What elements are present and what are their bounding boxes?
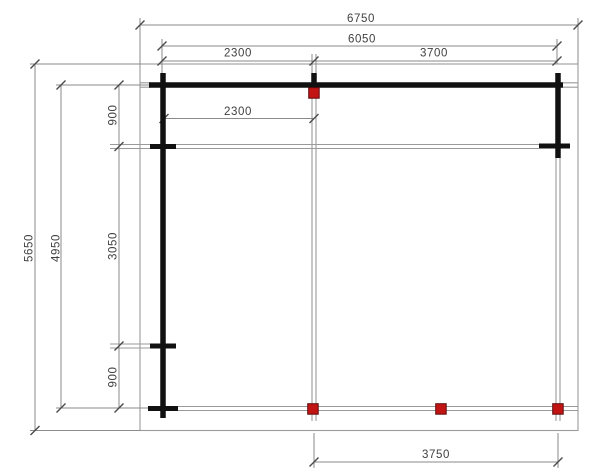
top-wall-right-stub <box>563 83 578 87</box>
partition-wall-horizontal <box>166 145 539 149</box>
dimension-labels: 6750 6050 2300 3700 2300 3750 5650 4950 … <box>24 13 450 461</box>
post-bottom-right <box>553 404 564 415</box>
log-end-stub-lower <box>110 344 150 348</box>
right-wall-lower <box>556 158 560 421</box>
post-bottom-middle <box>436 404 447 415</box>
dim-label-frame-depth: 4950 <box>51 234 63 262</box>
floor-plan-drawing: 6750 6050 2300 3700 2300 3750 5650 4950 … <box>0 0 600 474</box>
thin-walls <box>110 83 578 421</box>
timber-walls <box>148 73 570 418</box>
dim-label-left-top-bay: 900 <box>108 105 120 126</box>
post-bottom-left <box>308 404 319 415</box>
dim-label-overall-width: 6750 <box>347 13 375 25</box>
partition-wall-vertical <box>312 98 316 421</box>
dim-label-partition: 2300 <box>224 106 252 118</box>
log-end-stub-upper <box>110 145 150 149</box>
posts-outline <box>308 88 564 415</box>
dim-label-left-middle-bay: 3050 <box>108 232 120 260</box>
post-top-center <box>309 88 320 99</box>
dim-label-frame-width: 6050 <box>348 34 376 46</box>
posts <box>308 88 564 415</box>
dim-label-front-opening: 3750 <box>422 449 450 461</box>
dim-label-left-bottom-bay: 900 <box>108 367 120 388</box>
dim-label-overall-depth: 5650 <box>24 234 36 262</box>
floor-plan-page: 6750 6050 2300 3700 2300 3750 5650 4950 … <box>0 0 600 474</box>
dim-label-top-right-bay: 3700 <box>420 48 448 60</box>
dim-label-top-left-bay: 2300 <box>224 48 252 60</box>
bottom-wall <box>158 407 578 411</box>
